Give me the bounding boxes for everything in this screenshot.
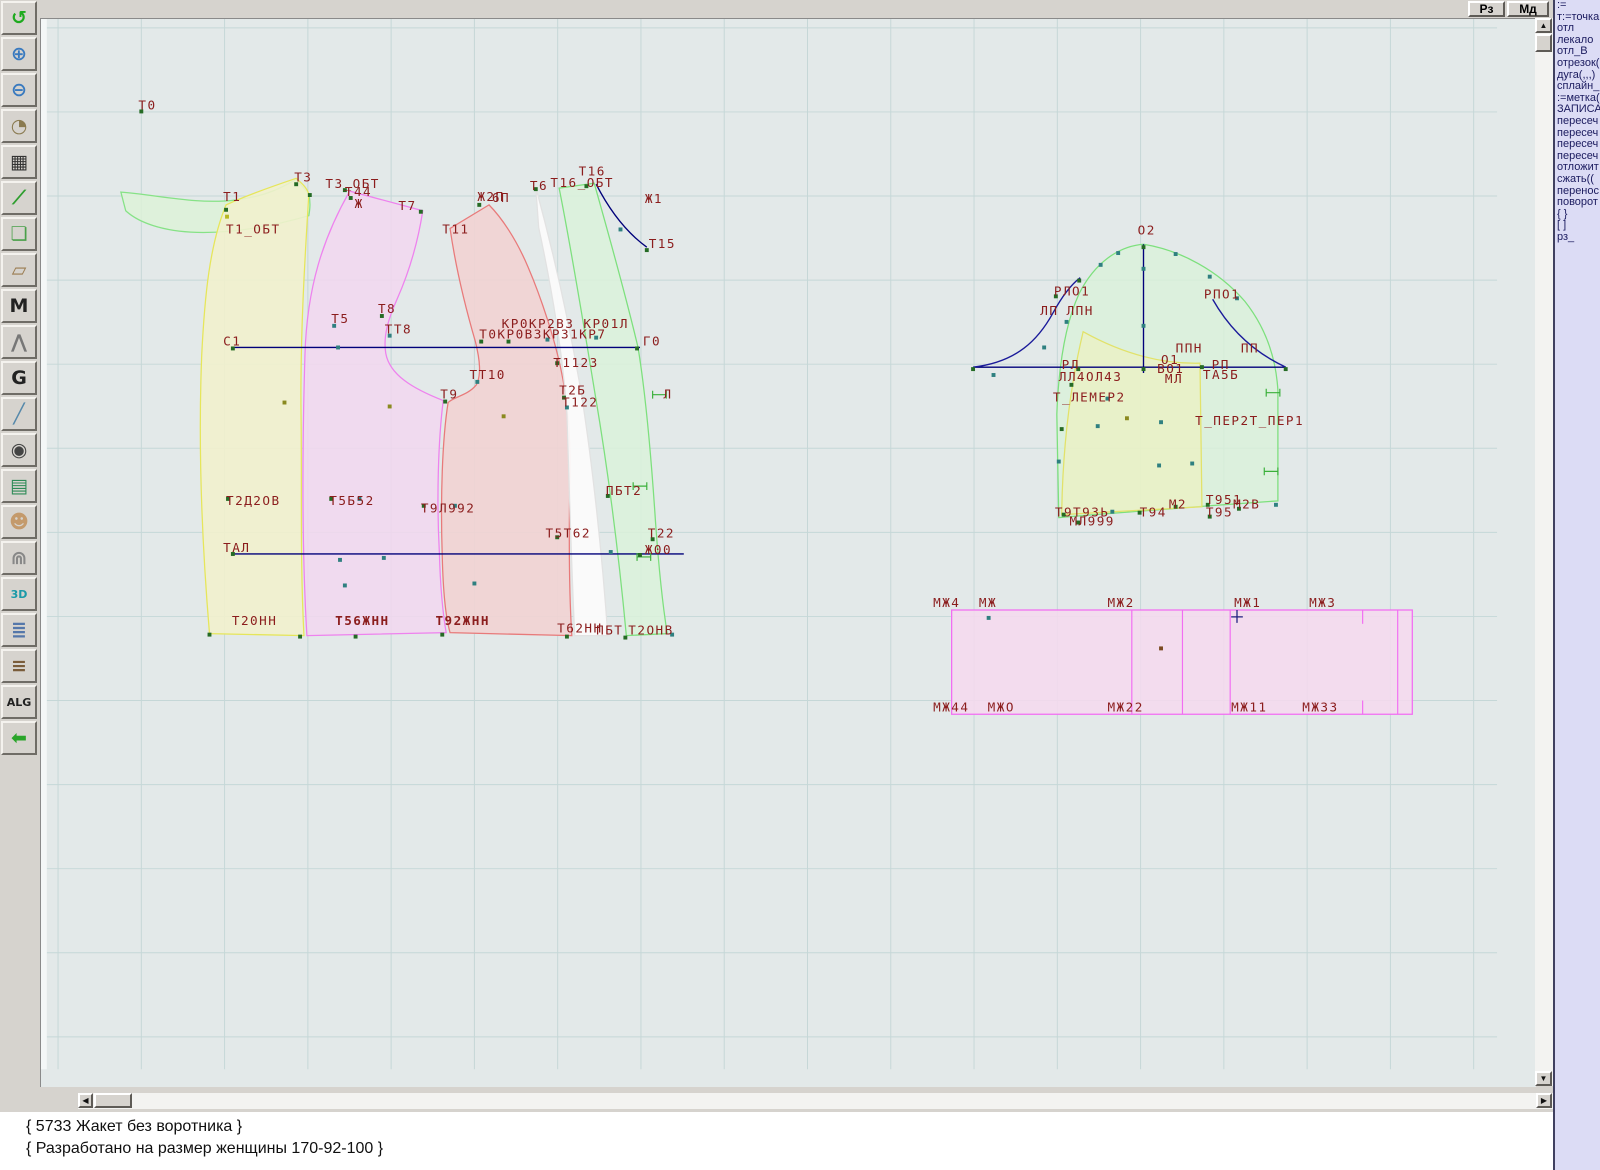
- point-label: Т1_ОБТ: [226, 221, 280, 236]
- pattern-point[interactable]: [354, 635, 358, 639]
- hscroll-thumb[interactable]: [94, 1093, 132, 1108]
- point-label: ЛП: [1040, 303, 1058, 318]
- pattern-point[interactable]: [472, 582, 476, 586]
- point-label: ЛПН: [1067, 303, 1094, 318]
- point-label: ТТ8: [385, 322, 412, 337]
- command-panel: :=т:=точкаотллекалоотл_Вотрезок(дуга(,,,…: [1553, 0, 1600, 1170]
- point-label: МЖ1: [1234, 595, 1261, 610]
- point-label: Т22: [648, 525, 675, 540]
- panel-command-17[interactable]: поворот: [1555, 197, 1600, 209]
- pattern-point[interactable]: [1065, 320, 1069, 324]
- point-label: О2: [1138, 222, 1156, 237]
- pattern-point[interactable]: [1057, 460, 1061, 464]
- pattern-pieces: [121, 178, 1412, 714]
- view3d-button[interactable]: 3D: [1, 577, 37, 611]
- point-label: МЖ44: [933, 699, 969, 714]
- top-strip: [40, 0, 1553, 18]
- zoom-in-icon: ⊕: [11, 45, 27, 64]
- point-label: Т94: [1140, 505, 1167, 520]
- canvas-left-margin: [41, 19, 47, 1069]
- back-piece[interactable]: [200, 178, 309, 635]
- pattern-point[interactable]: [225, 215, 229, 219]
- point-label: ТАЛ: [223, 540, 250, 555]
- pattern-point[interactable]: [1042, 345, 1046, 349]
- undo-button[interactable]: ↺: [1, 1, 37, 35]
- pattern-point[interactable]: [283, 401, 287, 405]
- point-label: Т95: [1206, 505, 1233, 520]
- pattern-point[interactable]: [1099, 263, 1103, 267]
- pattern-point[interactable]: [338, 558, 342, 562]
- point-label: МЖ2: [1107, 595, 1134, 610]
- point-label: Т56ЖНН: [335, 613, 389, 628]
- scroll-right-button[interactable]: ▶: [1536, 1093, 1552, 1108]
- point-label: Т1123: [553, 355, 598, 370]
- zoom-out-icon: ⊖: [11, 81, 27, 100]
- pattern-point[interactable]: [987, 616, 991, 620]
- pattern-point[interactable]: [623, 636, 627, 640]
- pattern-piece-icon: ▱: [12, 261, 27, 280]
- point-label: Т5Т62: [546, 525, 591, 540]
- pattern-point[interactable]: [971, 367, 975, 371]
- pattern-point[interactable]: [1159, 646, 1163, 650]
- panel-command-20[interactable]: рз_: [1555, 232, 1600, 244]
- point-label: МЛ999: [1069, 513, 1114, 528]
- point-label: ПП: [1241, 340, 1259, 355]
- point-label: ППН: [1176, 340, 1203, 355]
- point-label: Т1: [223, 189, 241, 204]
- console-line-2: { Разработано на размер женщины 170-92-1…: [0, 1138, 1556, 1160]
- jacket-button[interactable]: ⋒: [1, 541, 37, 575]
- point-label: МЖО: [988, 699, 1015, 714]
- pattern-point[interactable]: [1142, 367, 1146, 371]
- pattern-point[interactable]: [1190, 462, 1194, 466]
- pattern-point[interactable]: [619, 227, 623, 231]
- point-label: Г0: [643, 333, 661, 348]
- point-label: Т11: [442, 221, 469, 236]
- point-label: РЛО1: [1054, 283, 1090, 298]
- point-label: Т0КР0ВЗКР31КР7: [479, 327, 606, 342]
- ruler-button[interactable]: ╱: [1, 397, 37, 431]
- list-button[interactable]: ≣: [1, 613, 37, 647]
- point-label: Т122: [562, 394, 598, 409]
- g-letter-icon: G: [11, 369, 27, 388]
- pattern-point[interactable]: [1116, 251, 1120, 255]
- pattern-button[interactable]: ▱: [1, 253, 37, 287]
- spreadsheet-icon: ▤: [10, 477, 28, 496]
- point-label: Ж00: [645, 542, 672, 557]
- point-label: Т7: [398, 198, 416, 213]
- point-label: Л: [663, 387, 672, 402]
- point-label: Т3: [294, 169, 312, 184]
- pattern-m-icon: M: [10, 297, 29, 316]
- panel-command-10[interactable]: пересеч: [1555, 116, 1600, 128]
- point-label: Т5: [331, 311, 349, 326]
- point-label: С1: [223, 333, 241, 348]
- books-button[interactable]: ≡: [1, 649, 37, 683]
- point-label: Т15: [649, 236, 676, 251]
- point-label: 6П: [492, 190, 510, 205]
- point-label: ПБТ: [596, 623, 623, 638]
- point-label: МЖ3: [1309, 595, 1336, 610]
- drafting-button[interactable]: ⋀: [1, 325, 37, 359]
- point-label: Т20НН: [232, 613, 277, 628]
- exit-button[interactable]: ⬅: [1, 721, 37, 755]
- pattern-point[interactable]: [1208, 275, 1212, 279]
- alg-doc-icon: ALG: [7, 697, 32, 708]
- undo-icon: ↺: [11, 9, 27, 28]
- pattern-point[interactable]: [224, 208, 228, 212]
- pattern-point[interactable]: [1142, 245, 1146, 249]
- point-label: Т9: [440, 387, 458, 402]
- pattern-point[interactable]: [1142, 324, 1146, 328]
- zoom-area-button[interactable]: ◔: [1, 109, 37, 143]
- point-label: ТТ10: [470, 367, 506, 382]
- 3d-icon: 3D: [11, 589, 28, 600]
- pattern-point[interactable]: [638, 553, 642, 557]
- pattern-point[interactable]: [440, 633, 444, 637]
- scroll-left-button[interactable]: ◀: [78, 1093, 93, 1108]
- image-button[interactable]: ❏: [1, 217, 37, 251]
- point-label: Ж1: [645, 191, 663, 206]
- pattern-point[interactable]: [298, 635, 302, 639]
- point-label: ТА5Б: [1203, 367, 1239, 382]
- pattern-point[interactable]: [388, 405, 392, 409]
- pattern-point[interactable]: [1274, 503, 1278, 507]
- picture-icon: ❏: [10, 225, 27, 244]
- canvas-hscrollbar[interactable]: ◀ ▶: [78, 1093, 1553, 1109]
- pattern-point[interactable]: [1174, 252, 1178, 256]
- zoom-out-button[interactable]: ⊖: [1, 73, 37, 107]
- point-label: МЛ: [1165, 371, 1183, 386]
- point-label: Т6: [530, 178, 548, 193]
- pattern-point[interactable]: [1060, 427, 1064, 431]
- table-button[interactable]: ▤: [1, 469, 37, 503]
- vscroll-thumb[interactable]: [1535, 34, 1552, 52]
- point-label: Т8: [378, 301, 396, 316]
- point-label: РПО1: [1204, 286, 1240, 301]
- segment-icon: ⟋: [12, 189, 25, 208]
- panel-command-5[interactable]: отрезок(: [1555, 58, 1600, 70]
- point-label: МЖ33: [1302, 699, 1338, 714]
- point-label: Т92ЖНН: [435, 613, 489, 628]
- compass-icon: ⋀: [11, 333, 27, 352]
- camera-icon: ◉: [11, 441, 28, 460]
- pattern-point[interactable]: [1077, 279, 1081, 283]
- pattern-point[interactable]: [208, 633, 212, 637]
- photo-button[interactable]: ☻: [1, 505, 37, 539]
- pattern-point[interactable]: [1142, 267, 1146, 271]
- exit-arrow-icon: ⬅: [11, 729, 27, 748]
- camera-button[interactable]: ◉: [1, 433, 37, 467]
- toolbar: ↺⊕⊖◔▦⟋❏▱M⋀G╱◉▤☻⋒3D≣≡ALG⬅: [0, 0, 39, 1170]
- pattern-m-button[interactable]: M: [1, 289, 37, 323]
- pattern-point[interactable]: [992, 373, 996, 377]
- text-list-icon: ≣: [11, 621, 27, 640]
- point-label: ЛЛ4ОЛ43: [1059, 369, 1123, 384]
- point-label: ПБТ2: [606, 483, 642, 498]
- pattern-point[interactable]: [343, 583, 347, 587]
- point-label: Т5Б52: [329, 493, 374, 508]
- pattern-point[interactable]: [635, 346, 639, 350]
- point-label: Т0: [138, 97, 156, 112]
- g-tool-button[interactable]: G: [1, 361, 37, 395]
- point-label: Т2Д2ОВ: [226, 493, 280, 508]
- md-button[interactable]: Мд: [1507, 1, 1549, 17]
- panel-command-0[interactable]: :=: [1555, 0, 1600, 12]
- pattern-point[interactable]: [419, 210, 423, 214]
- point-label: МЖ: [979, 595, 997, 610]
- point-label: Ж: [355, 196, 364, 211]
- pattern-point[interactable]: [1157, 464, 1161, 468]
- magnifier-pattern-icon: ◔: [11, 117, 28, 136]
- pattern-point[interactable]: [1159, 420, 1163, 424]
- zoom-in-button[interactable]: ⊕: [1, 37, 37, 71]
- pattern-point[interactable]: [1125, 416, 1129, 420]
- point-label: Т16_ОБТ: [550, 175, 614, 190]
- panel-command-12[interactable]: пересеч: [1555, 139, 1600, 151]
- scroll-up-button[interactable]: ▲: [1535, 18, 1552, 33]
- pattern-point[interactable]: [382, 556, 386, 560]
- point-label: Т_ПЕР2Т_ПЕР1: [1195, 413, 1304, 428]
- point-label: МЖ22: [1107, 699, 1143, 714]
- panel-command-7[interactable]: сплайн_: [1555, 81, 1600, 93]
- jacket-sketch-icon: ⋒: [11, 549, 27, 568]
- rz-button[interactable]: Рз: [1468, 1, 1505, 17]
- portrait-icon: ☻: [9, 513, 29, 532]
- point-label: М2В: [1233, 497, 1260, 512]
- point-label: М2: [1169, 497, 1187, 512]
- measure-button[interactable]: ⟋: [1, 181, 37, 215]
- panel-command-15[interactable]: сжать((: [1555, 174, 1600, 186]
- pattern-point[interactable]: [609, 550, 613, 554]
- point-label: МЖ4: [933, 595, 960, 610]
- scroll-down-button[interactable]: ▼: [1535, 1071, 1552, 1086]
- point-label: Т2ОНВ: [628, 623, 673, 638]
- pattern-point[interactable]: [502, 414, 506, 418]
- grid-icon: ▦: [10, 153, 28, 172]
- grid-button[interactable]: ▦: [1, 145, 37, 179]
- alg-button[interactable]: ALG: [1, 685, 37, 719]
- point-label: Т_ЛЕМЕР2: [1053, 389, 1126, 404]
- ruler-icon: ╱: [13, 405, 24, 424]
- pattern-point[interactable]: [1096, 424, 1100, 428]
- canvas-vscrollbar[interactable]: ▲ ▼: [1535, 18, 1553, 1086]
- point-label: МЖ11: [1231, 699, 1267, 714]
- side-back-piece[interactable]: [303, 191, 446, 636]
- books-icon: ≡: [11, 657, 27, 676]
- pattern-point[interactable]: [308, 193, 312, 197]
- command-console[interactable]: { 5733 Жакет без воротника } { Разработа…: [0, 1112, 1556, 1170]
- pattern-point[interactable]: [1284, 367, 1288, 371]
- pattern-canvas[interactable]: Т0Т3Т3_ОБТТ1Т44ЖТ7Т1_ОБТЖ2П6ПТ6Т16Т16_ОБ…: [40, 18, 1536, 1087]
- point-label: Т9Л992: [421, 501, 475, 516]
- console-line-1: { 5733 Жакет без воротника }: [0, 1116, 1556, 1138]
- pattern-point[interactable]: [336, 345, 340, 349]
